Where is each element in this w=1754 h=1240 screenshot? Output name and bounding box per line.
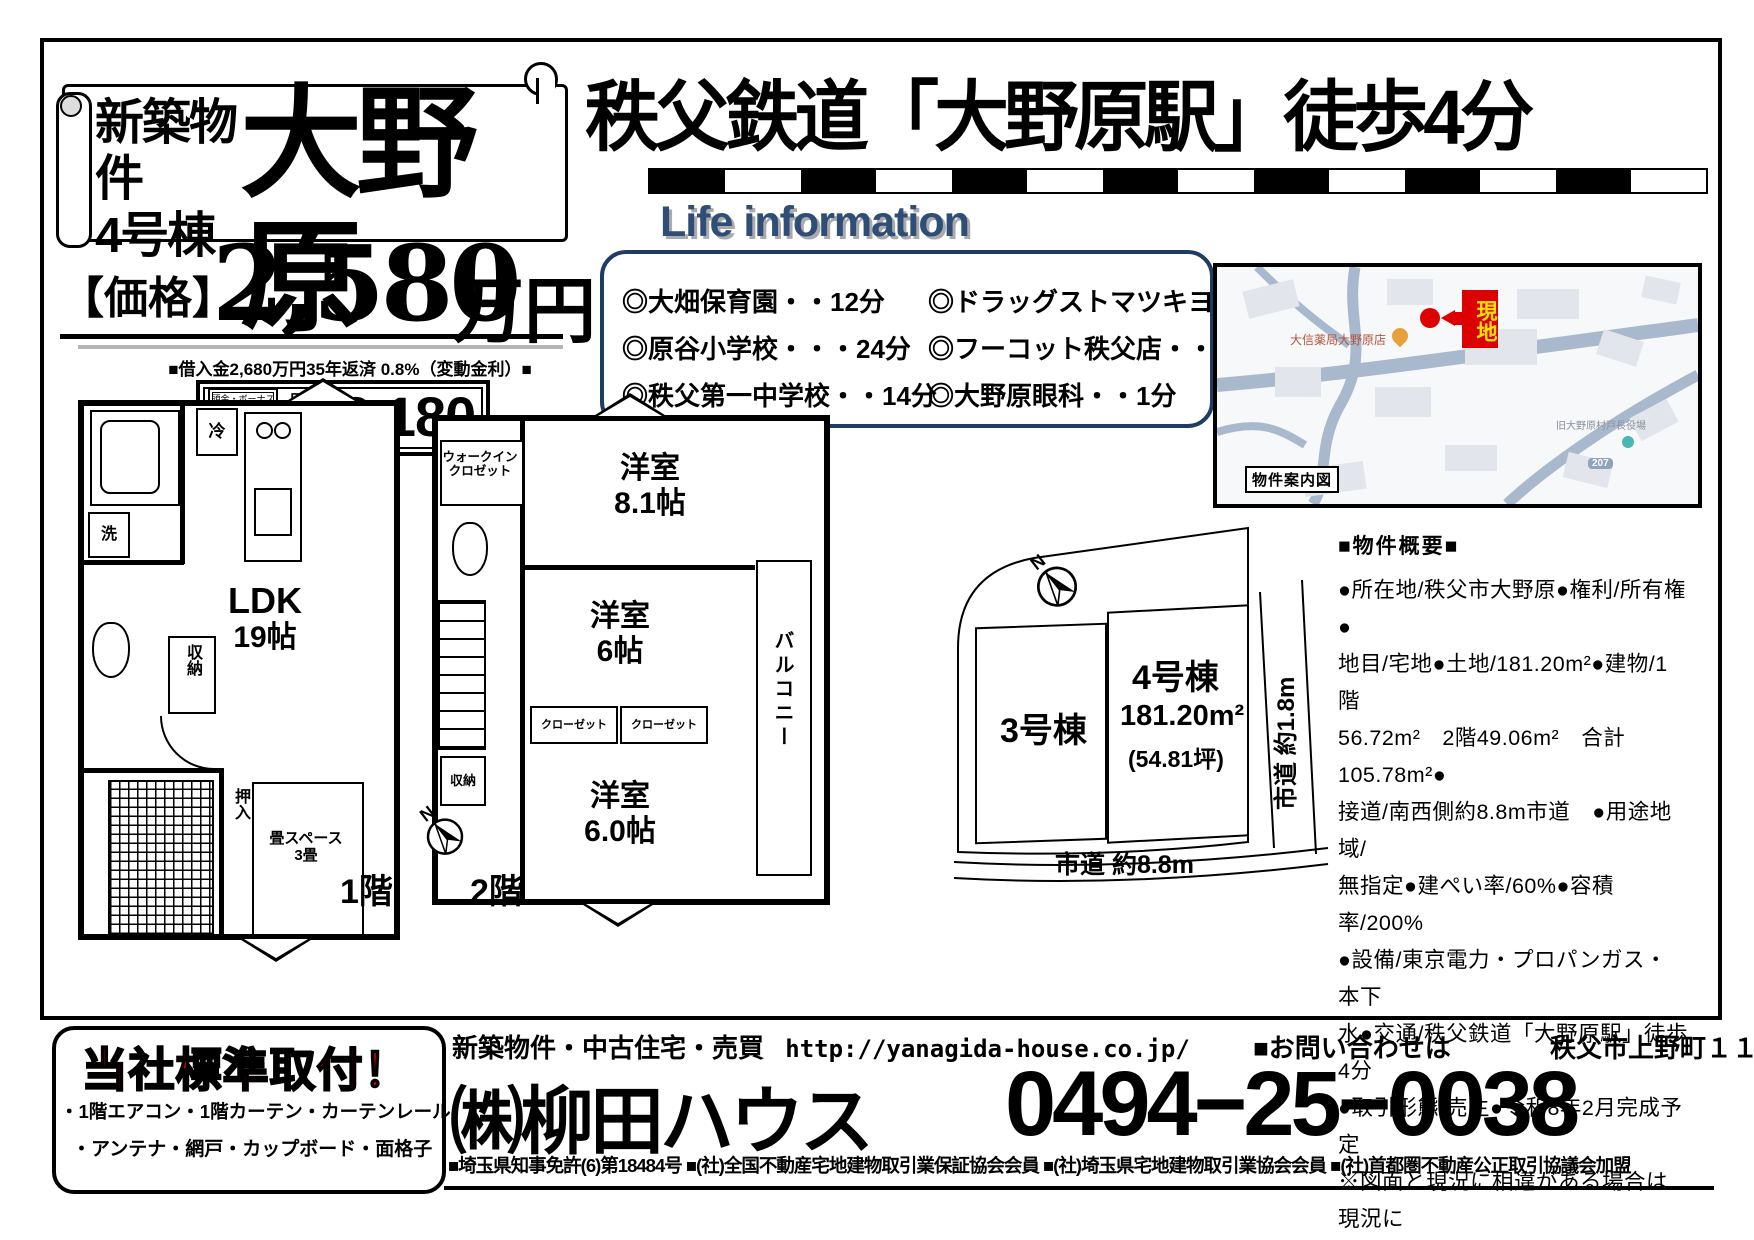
room-8-1-label: 洋室 8.1帖 [560, 452, 740, 521]
wall [180, 404, 185, 564]
site-marker-arrow-icon [1441, 310, 1455, 326]
standard-equipment-title: 当社標準取付！ [64, 1034, 428, 1100]
price-underline [60, 334, 563, 339]
overview-header: ■物件概要■ [1338, 530, 1459, 560]
price-underline-shadow [78, 345, 563, 349]
standard-equipment-line1: ・1階エアコン・1階カーテン・カーテンレール [60, 1098, 432, 1124]
loan-note: ■借入金2,680万円35年返済 0.8%（変動金利）■ [150, 355, 550, 380]
life-item: ◎大野原眼科・・1分 [928, 376, 1176, 413]
toilet-icon [452, 522, 488, 576]
floor1-label: 1階 [340, 864, 393, 913]
room-8-1-size: 8.1帖 [560, 487, 740, 522]
stove-burner-icon [274, 422, 291, 439]
fridge-label: 冷 [196, 408, 238, 456]
lot4-tsubo: (54.81坪) [1128, 740, 1224, 774]
license-line: ■埼玉県知事免許(6)第18484号 ■(社)全国不動産宅地建物取引業保証協会会… [448, 1152, 1714, 1178]
room-6-name: 洋室 [550, 600, 690, 635]
room-6-size: 6帖 [550, 635, 690, 670]
wic-line1: ウォークイン [440, 450, 520, 464]
room-6-0-name: 洋室 [550, 780, 690, 815]
scroll-left-knob-icon [60, 95, 82, 117]
washer-label: 洗 [88, 512, 130, 558]
gable-marker [238, 938, 314, 962]
toilet-icon [92, 622, 130, 678]
stove-burner-icon [256, 422, 273, 439]
room-8-1-name: 洋室 [560, 452, 740, 487]
company-phone: 0494−25−0038 [1005, 1052, 1576, 1157]
overview-line: ●設備/東京電力・プロパンガス・本下 [1338, 942, 1688, 1016]
overview-line: 地目/宅地●土地/181.20m²●建物/1階 [1338, 646, 1688, 720]
ldk-name: LDK [200, 580, 330, 621]
room-6-0-size: 6.0帖 [550, 815, 690, 850]
flyer-page: 新築物件 4号棟 大野原 【価格】 2,580 万円 ■借入金2,680万円35… [0, 0, 1754, 1240]
wic-line2: クロゼット [440, 464, 520, 478]
room-6-label: 洋室 6帖 [550, 600, 690, 669]
road-right-label: 市道 約1.8m [1266, 677, 1301, 810]
ldk-label: LDK 19帖 [200, 580, 330, 656]
site-marker-label: 現地 [1462, 290, 1498, 348]
price-label: 【価格】 [60, 262, 236, 326]
map-landmark-label: 旧大野原村戸長役場 [1556, 420, 1666, 433]
closet-2: クローゼット [620, 706, 708, 744]
overview-line: 接道/南西側約8.8m市道 ●用途地域/ [1338, 794, 1688, 868]
overview-line: ●所在地/秩父市大野原●権利/所有権● [1338, 572, 1688, 646]
map-landmark-icon [1622, 436, 1634, 448]
life-info-title: Life information [652, 198, 977, 247]
wic-label: ウォークイン クロゼット [440, 450, 520, 479]
gable-marker [580, 903, 656, 927]
entrance-hatch [108, 780, 214, 936]
life-item: ◎原谷小学校・・・24分 [622, 329, 911, 366]
standard-equipment-line2: ・アンテナ・網戸・カップボード・面格子 [72, 1134, 432, 1161]
storage-1f-label: 収納 [180, 644, 204, 676]
price-unit: 万円 [452, 252, 596, 357]
route-number-badge: 207 [1588, 458, 1613, 469]
lot4-label: 4号棟 [1132, 650, 1219, 699]
road-bottom-label: 市道 約8.8m [1055, 845, 1194, 881]
wall [84, 768, 219, 773]
oshiire-label: 押入 [228, 788, 252, 820]
wall [525, 565, 755, 570]
life-item: ◎秩父第一中学校・・14分 [622, 376, 937, 413]
lot4-area: 181.20m² [1120, 700, 1244, 733]
tatami-name: 畳スペース [254, 830, 358, 847]
kitchen-counter [244, 412, 302, 562]
bathtub-icon [100, 420, 160, 494]
pharmacy-label: 大信薬局大野原店 [1290, 331, 1386, 348]
gable-marker [285, 378, 361, 402]
checker-bar [648, 168, 1708, 194]
storage-2f: 収納 [440, 756, 486, 806]
gable-marker [592, 393, 668, 417]
stairs [438, 600, 486, 750]
kitchen-sink-icon [254, 488, 292, 536]
closet-1: クローゼット [530, 706, 618, 744]
lot3-label: 3号棟 [1000, 703, 1087, 752]
overview-line: 無指定●建ぺい率/60%●容積率/200% [1338, 868, 1688, 942]
ldk-size: 19帖 [200, 621, 330, 656]
company-address: 秩父市上野町１１－１１ [1550, 1033, 1754, 1063]
banner-subtitle: 新築物件 4号棟 [95, 95, 245, 225]
site-marker-dot [1420, 308, 1440, 328]
life-item: ◎フーコット秩父店・・7分 [928, 329, 1254, 366]
tatami-label: 畳スペース 3畳 [254, 830, 358, 865]
balcony-label: バルコニー [768, 630, 797, 750]
business-categories: 新築物件・中古住宅・売買 [452, 1033, 764, 1063]
wall [219, 768, 224, 936]
tatami-size: 3畳 [254, 847, 358, 864]
storage-1f: 収納 [168, 636, 216, 714]
life-item: ◎大畑保育園・・12分 [622, 282, 885, 319]
station-headline: 秩父鉄道「大野原駅」徒歩4分 [585, 56, 1676, 167]
wall [84, 560, 184, 565]
banner-line1: 新築物件 [95, 95, 245, 208]
overview-line: 56.72m² 2階49.06m² 合計105.78m²● [1338, 720, 1688, 794]
bottom-border [444, 1186, 1714, 1190]
room-6-0-label: 洋室 6.0帖 [550, 780, 690, 849]
floor2-label: 2階 [470, 864, 523, 913]
